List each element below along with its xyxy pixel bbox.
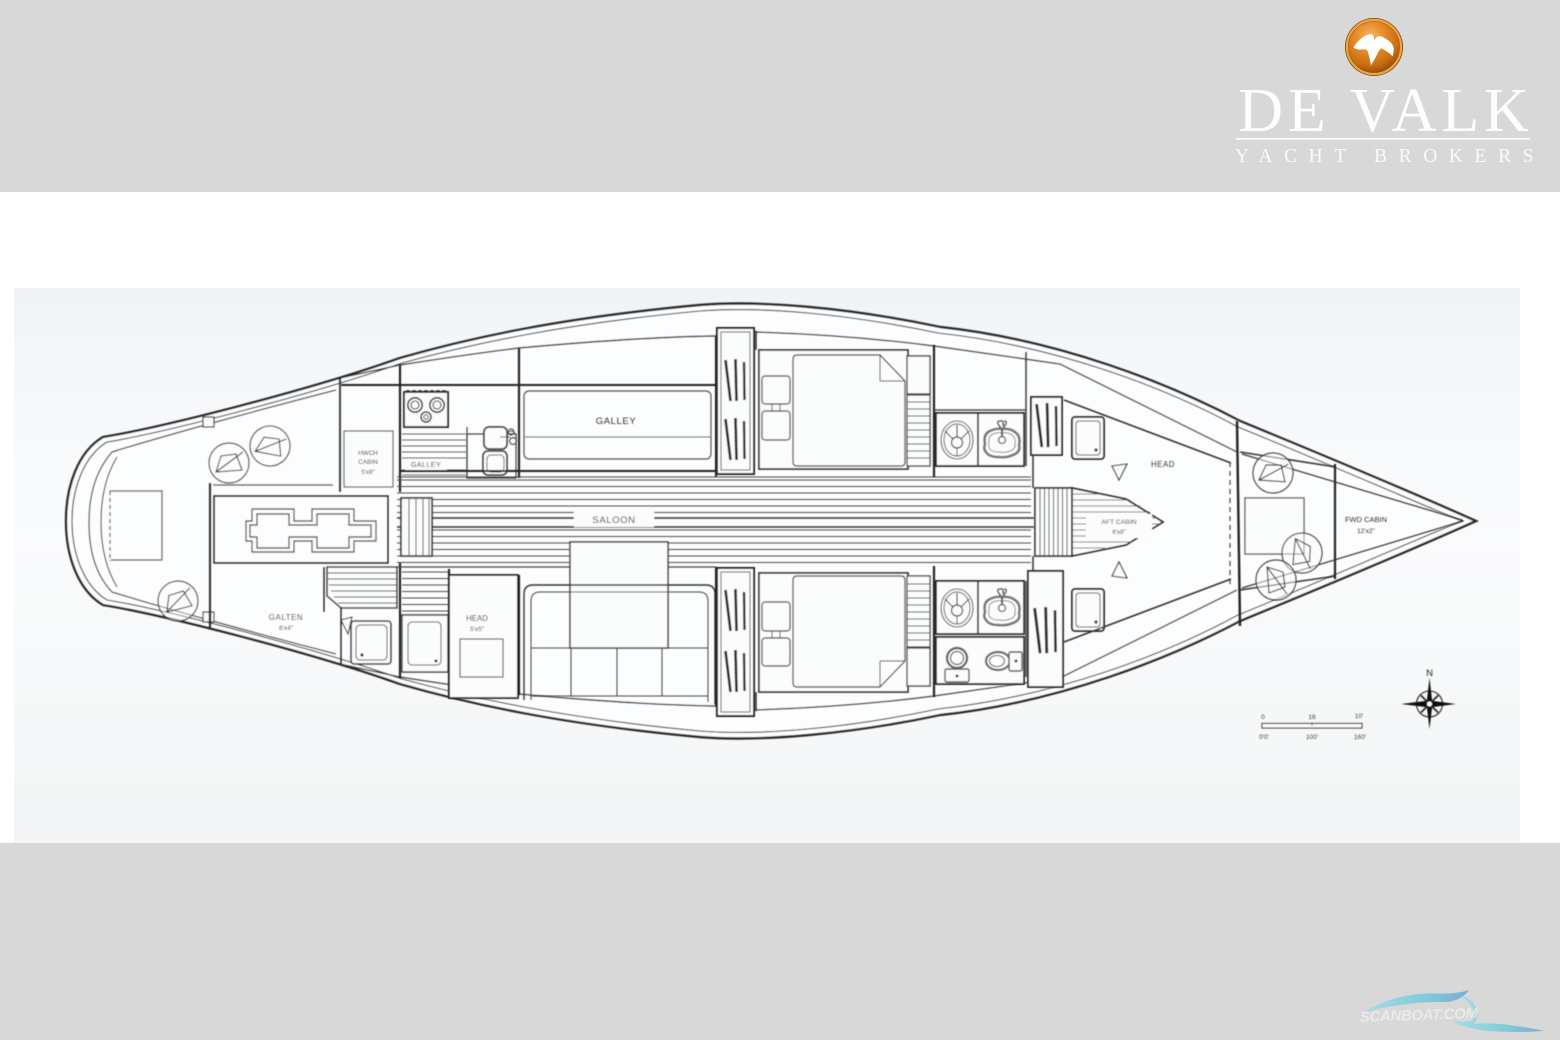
svg-text:YACHT BROKERS: YACHT BROKERS	[1235, 146, 1545, 167]
svg-text:N: N	[1426, 668, 1433, 679]
svg-text:FWD CABIN: FWD CABIN	[1345, 515, 1387, 524]
svg-text:SALOON: SALOON	[592, 515, 635, 526]
svg-text:12'x2": 12'x2"	[1357, 528, 1375, 535]
svg-text:GALLEY: GALLEY	[411, 460, 441, 469]
svg-text:GALLEY: GALLEY	[596, 416, 637, 427]
svg-text:5'x8": 5'x8"	[361, 469, 374, 476]
svg-text:100': 100'	[1306, 734, 1318, 741]
svg-text:0: 0	[1261, 714, 1265, 721]
svg-text:16: 16	[1308, 714, 1316, 721]
svg-text:HEAD: HEAD	[1151, 460, 1175, 469]
svg-text:5'x5": 5'x5"	[470, 626, 485, 633]
svg-text:HEAD: HEAD	[466, 614, 488, 623]
svg-text:HWCH: HWCH	[358, 450, 378, 457]
svg-text:DE VALK: DE VALK	[1238, 77, 1534, 145]
svg-text:GALTEN: GALTEN	[269, 613, 303, 622]
svg-text:6'x8": 6'x8"	[1112, 529, 1125, 536]
svg-text:CABIN: CABIN	[358, 459, 378, 466]
svg-text:6'x4": 6'x4"	[279, 625, 294, 632]
svg-text:AFT CABIN: AFT CABIN	[1101, 519, 1136, 526]
svg-text:0'0': 0'0'	[1259, 734, 1269, 741]
svg-text:10': 10'	[1355, 713, 1364, 720]
svg-text:160': 160'	[1354, 734, 1366, 741]
